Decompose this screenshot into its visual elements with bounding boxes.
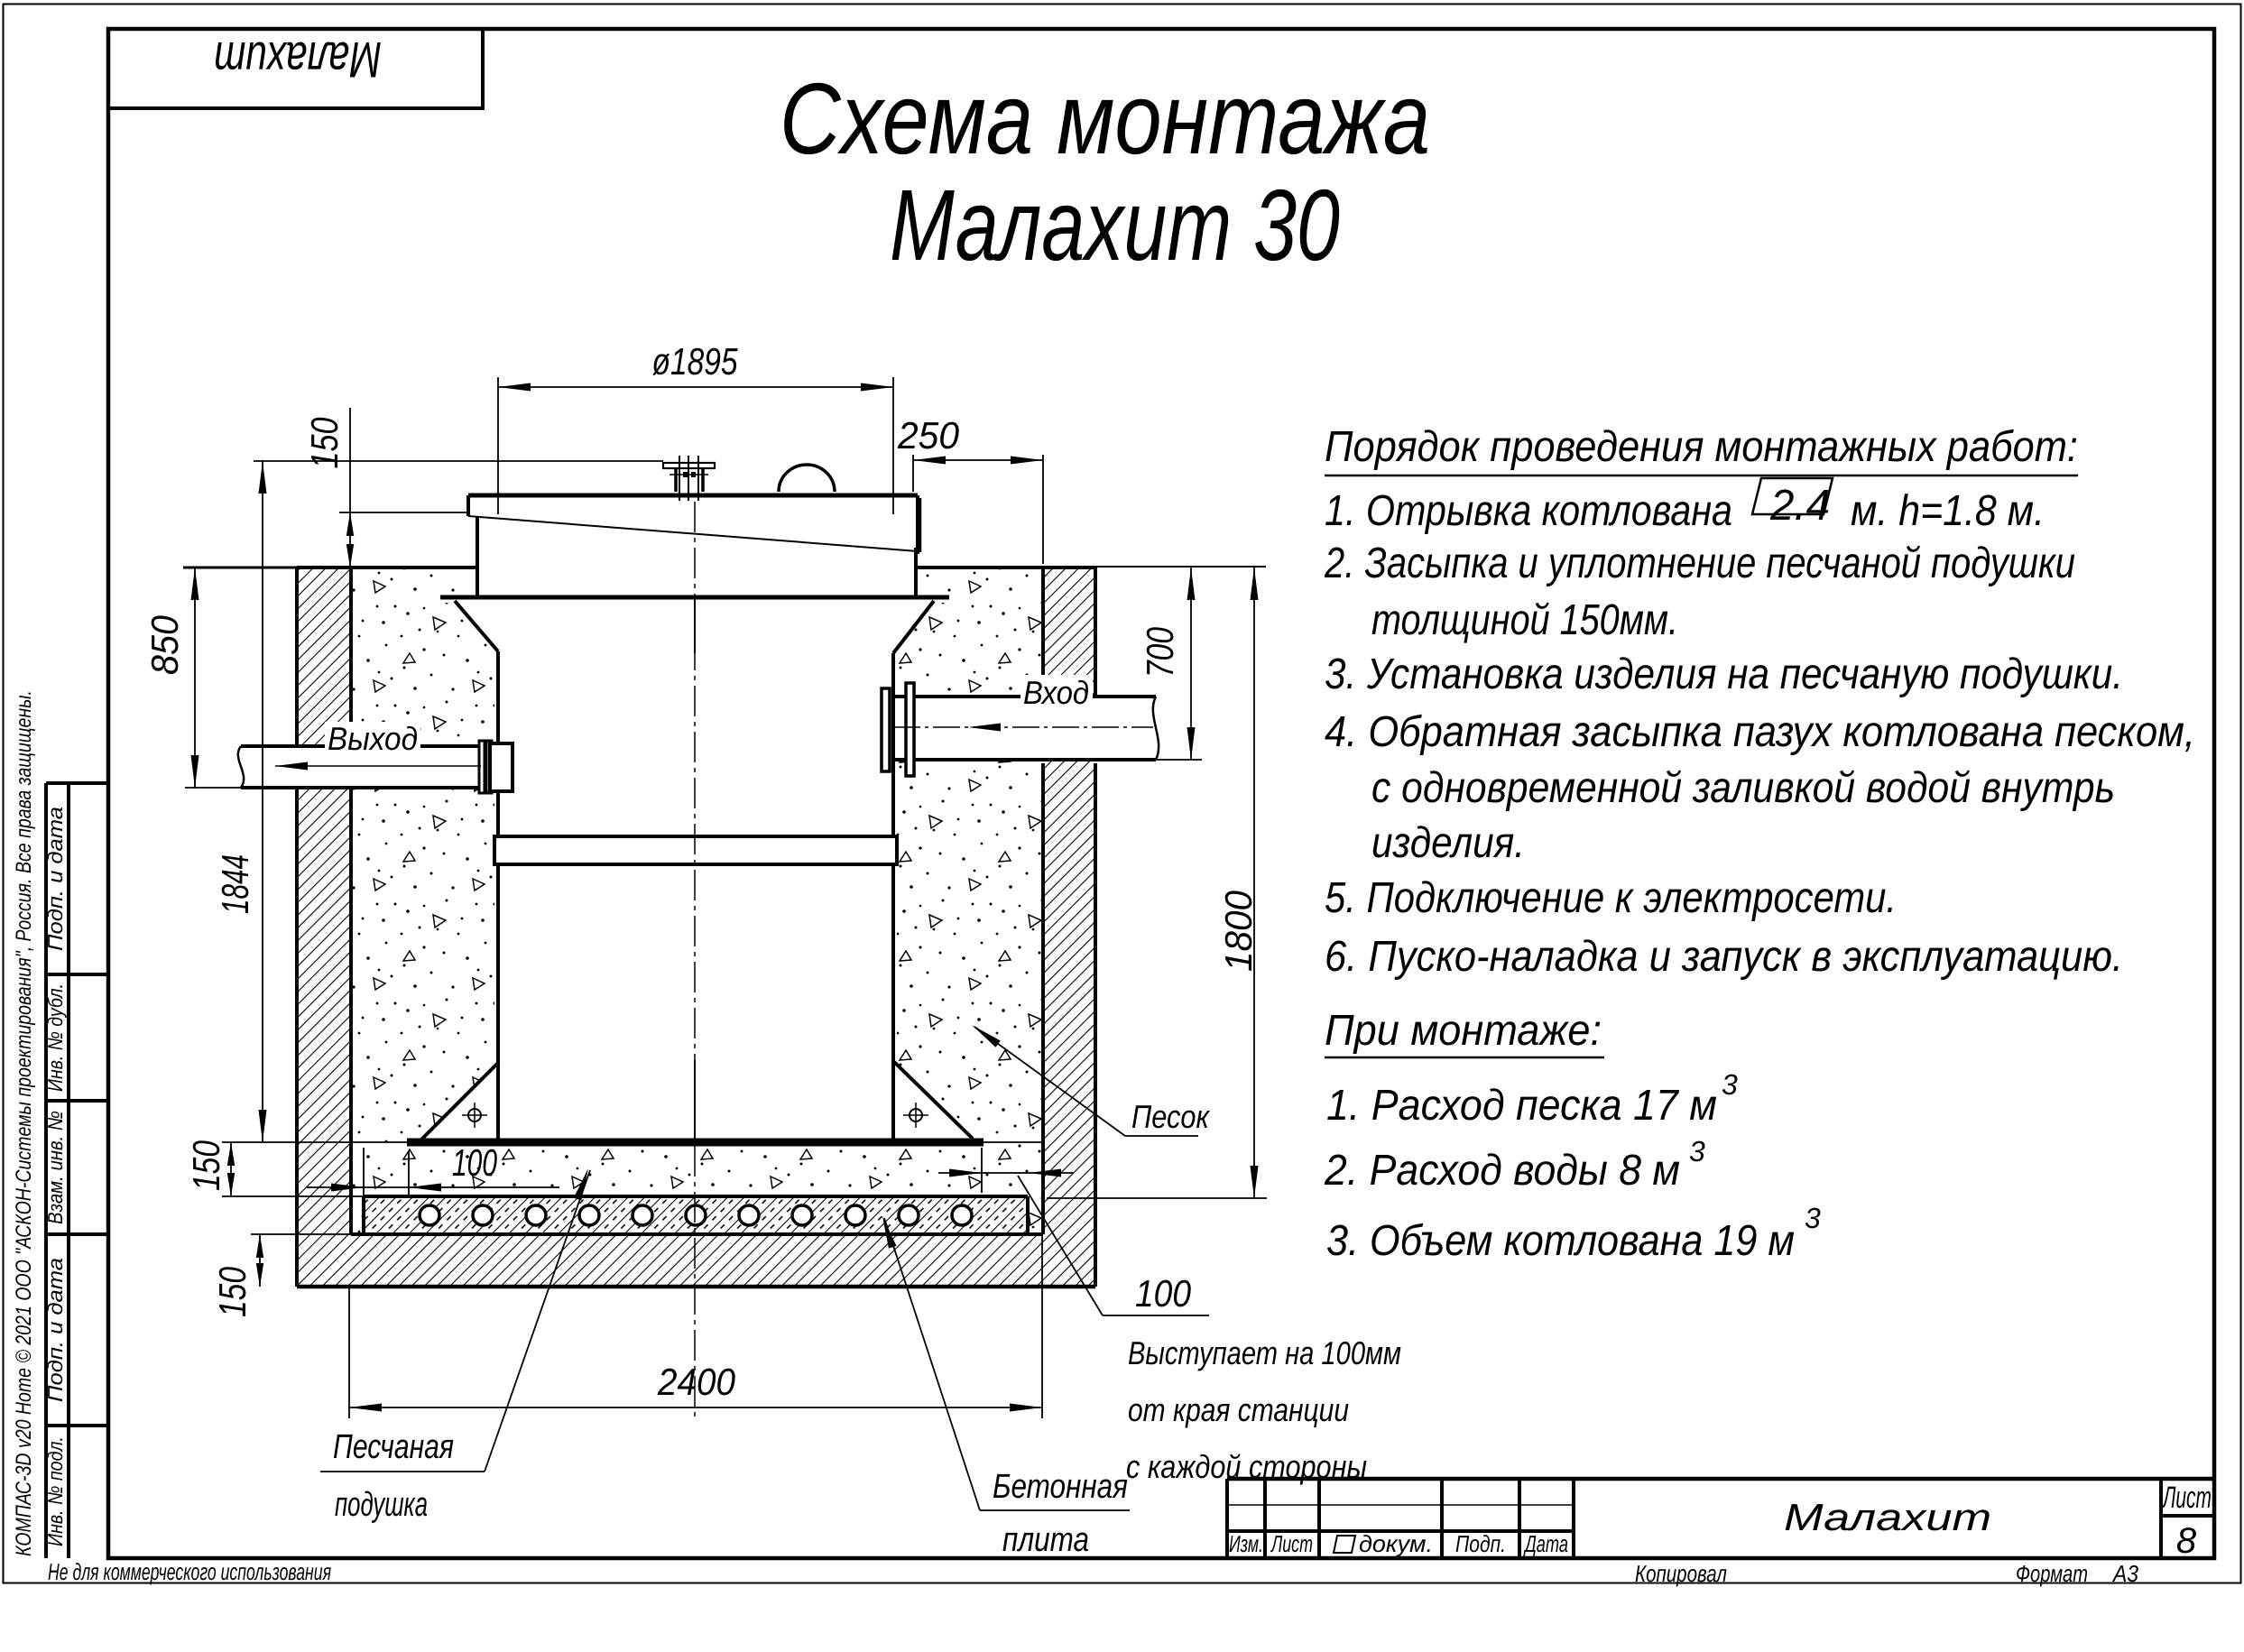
svg-text:2. Расход воды 8 м: 2. Расход воды 8 м [1324, 1147, 1680, 1195]
svg-text:Не для коммерческого использов: Не для коммерческого использования [48, 1558, 331, 1585]
svg-text:А3: А3 [2111, 1560, 2138, 1587]
svg-text:100: 100 [1135, 1272, 1192, 1315]
svg-text:подушка: подушка [335, 1486, 428, 1524]
svg-text:с каждой стороны: с каждой стороны [1126, 1448, 1367, 1485]
svg-text:Лист: Лист [1270, 1530, 1313, 1557]
svg-text:8: 8 [2176, 1521, 2197, 1561]
svg-text:Копировал: Копировал [1635, 1560, 1727, 1587]
svg-text:м. h=1.8 м.: м. h=1.8 м. [1851, 487, 2045, 535]
svg-text:1844: 1844 [214, 854, 256, 914]
svg-text:1. Расход песка 17 м: 1. Расход песка 17 м [1326, 1082, 1717, 1130]
svg-text:Подп. и дата: Подп. и дата [43, 1258, 67, 1402]
svg-text:При монтаже:: При монтаже: [1325, 1007, 1602, 1055]
svg-text:Изм.: Изм. [1229, 1530, 1263, 1557]
svg-text:3: 3 [1722, 1068, 1738, 1101]
svg-text:850: 850 [143, 614, 186, 675]
svg-text:Дата: Дата [1523, 1530, 1568, 1557]
svg-text:от края станции: от края станции [1128, 1391, 1349, 1428]
svg-text:Подп.: Подп. [1455, 1530, 1506, 1557]
svg-text:КОМПАС-3D v20 Home © 2021 ООО: КОМПАС-3D v20 Home © 2021 ООО "АСКОН-Сис… [12, 690, 36, 1556]
svg-text:5. Подключение к электросети.: 5. Подключение к электросети. [1325, 874, 1897, 922]
svg-text:150: 150 [185, 1140, 227, 1191]
svg-text:Малахит: Малахит [1784, 1496, 1991, 1538]
svg-text:3. Объем котлована 19 м: 3. Объем котлована 19 м [1326, 1217, 1795, 1265]
svg-text:ø1895: ø1895 [652, 340, 739, 383]
svg-text:Песчаная: Песчаная [333, 1428, 454, 1466]
svg-text:Лист: Лист [2162, 1481, 2212, 1515]
svg-text:2400: 2400 [657, 1361, 736, 1403]
svg-text:1. Отрывка котлована: 1. Отрывка котлована [1325, 487, 1732, 535]
svg-text:2. Засыпка и уплотнение песчан: 2. Засыпка и уплотнение песчаной подушки [1324, 540, 2075, 587]
svg-text:Взам. инв. №: Взам. инв. № [43, 1111, 67, 1224]
svg-text:Бетонная: Бетонная [993, 1468, 1128, 1506]
svg-text:Малахит 30: Малахит 30 [890, 169, 1340, 281]
svg-text:докум.: докум. [1359, 1530, 1433, 1557]
svg-text:Инв. № дубл.: Инв. № дубл. [43, 983, 67, 1092]
svg-text:с одновременной заливкой водой: с одновременной заливкой водой внутрь [1371, 764, 2115, 812]
svg-text:6. Пуско-наладка и запуск в эк: 6. Пуско-наладка и запуск в эксплуатацию… [1325, 933, 2123, 981]
svg-text:Подп. и дата: Подп. и дата [43, 807, 67, 951]
svg-text:4. Обратная засыпка пазух котл: 4. Обратная засыпка пазух котлована песк… [1325, 708, 2195, 756]
svg-text:Малахит: Малахит [214, 32, 382, 88]
svg-text:Схема монтажа: Схема монтажа [780, 62, 1430, 175]
svg-text:700: 700 [1139, 626, 1181, 678]
svg-text:плита: плита [1002, 1521, 1089, 1559]
svg-text:Формат: Формат [2016, 1560, 2088, 1587]
svg-text:3. Установка изделия на песчан: 3. Установка изделия на песчаную подушки… [1325, 651, 2123, 698]
svg-text:изделия.: изделия. [1371, 819, 1525, 867]
svg-text:150: 150 [211, 1266, 254, 1317]
svg-text:Выступает на 100мм: Выступает на 100мм [1128, 1334, 1401, 1371]
svg-text:100: 100 [452, 1141, 497, 1184]
svg-text:Вход: Вход [1023, 674, 1089, 711]
svg-text:Выход: Выход [328, 720, 418, 757]
svg-text:3: 3 [1689, 1135, 1705, 1167]
svg-text:Порядок проведения монтажных р: Порядок проведения монтажных работ: [1325, 423, 2078, 471]
svg-text:Инв. № подл.: Инв. № подл. [43, 1436, 67, 1546]
svg-text:250: 250 [897, 414, 960, 457]
svg-text:Песок: Песок [1131, 1098, 1211, 1135]
svg-text:1800: 1800 [1217, 890, 1260, 972]
svg-text:2.4: 2.4 [1769, 482, 1830, 530]
svg-text:3: 3 [1805, 1202, 1821, 1234]
svg-text:толщиной 150мм.: толщиной 150мм. [1371, 596, 1678, 644]
